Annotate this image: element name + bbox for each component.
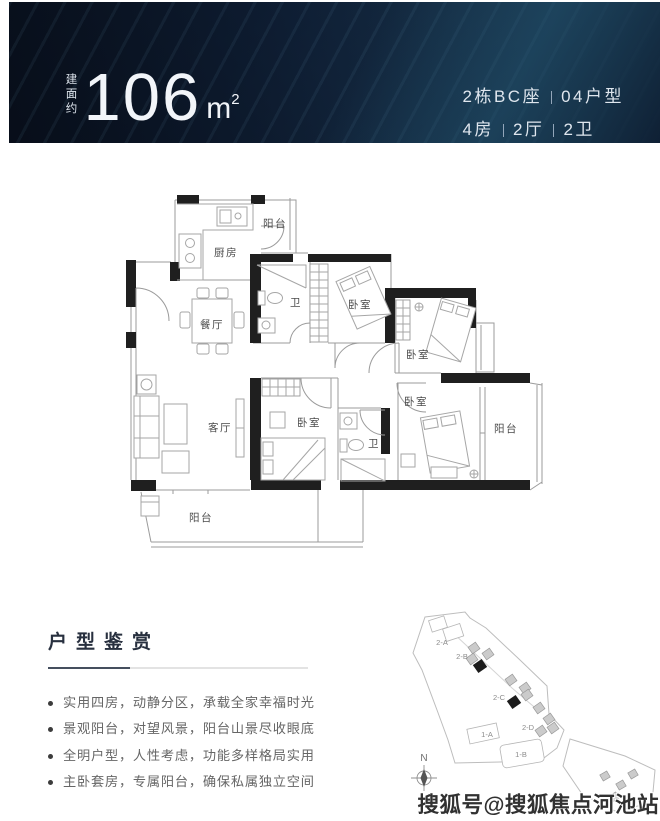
block-label: 2-A [436,638,448,647]
bedroom-top-door [335,343,360,368]
room-label-balcony-top: 阳台 [263,217,287,230]
rooms-label: 4房 [463,120,494,139]
area-unit-m: m [206,92,231,125]
features-title: 户型鉴赏 [48,627,378,654]
water-heater [141,496,159,516]
room-label-bath2: 卫 [368,438,380,450]
toilet-2 [340,439,347,452]
area-unit-sup: 2 [231,91,239,108]
nightstand [401,454,415,467]
toilet-1 [258,291,265,305]
watermark: 搜狐号@搜狐焦点河池站 [418,788,659,819]
feature-item: 全明户型，人性考虑，功能多样格局实用 [48,743,378,769]
block-label: 2-B [456,652,468,661]
room-label-dining: 餐厅 [200,318,224,331]
feature-item: 景观阳台，对望风景，阳台山景尽收眼底 [48,716,378,742]
room-label-bedroom-top: 卧室 [348,298,372,311]
divider [553,124,554,137]
bed-top [336,267,391,330]
floor-plan: 厨房 阳台 卫 餐厅 卧室 卧室 卧室 阳台 卧室 卫 客厅 阳台 [113,190,553,570]
bench [431,467,457,478]
area-unit: m2 [206,92,239,126]
bedroom-mid-door [301,378,331,408]
block-label: 1-B [515,750,527,759]
shower-1 [257,265,306,288]
shower-2 [341,459,385,481]
feature-list: 实用四房，动静分区，承载全家幸福时光 景观阳台，对望风景，阳台山景尽收眼底 全明… [48,690,378,795]
block-label: 2-C [493,693,506,702]
room-label-living: 客厅 [208,421,232,434]
bullet-dot-icon [48,780,53,785]
bed-master [420,411,469,473]
coffee-table [164,404,187,444]
desk [270,412,285,428]
basin-1 [258,318,275,333]
unit-type-label: 04户型 [561,87,624,106]
banner: 建面约 106 m2 2栋BC座04户型 4房2厅2卫 [9,2,660,143]
basin-2 [340,413,357,429]
room-labels: 厨房 阳台 卫 餐厅 卧室 卧室 卧室 阳台 卧室 卫 客厅 阳台 [189,217,518,524]
floorplan-flyer-page: 建面约 106 m2 2栋BC座04户型 4房2厅2卫 [0,0,660,821]
divider [551,91,552,104]
feature-item: 实用四房，动静分区，承载全家幸福时光 [48,690,378,716]
bed-right [426,298,476,362]
halls-label: 2厅 [513,120,544,139]
spec-line: 4房2厅2卫 [463,115,625,140]
feature-item: 主卧套房，专属阳台，确保私属独立空间 [48,769,378,795]
building-label: 2栋BC座 [463,87,543,106]
compass-n-label: N [420,753,427,764]
room-label-bedroom-master: 卧室 [404,395,428,408]
unit-line: 2栋BC座04户型 [463,82,625,107]
room-label-balcony-bottom: 阳台 [189,511,213,524]
room-label-balcony-right: 阳台 [494,422,518,435]
room-label-bath1: 卫 [290,297,302,309]
unit-info: 2栋BC座04户型 4房2厅2卫 [463,82,625,140]
bullet-dot-icon [48,754,53,759]
room-label-bedroom-mid: 卧室 [297,416,321,429]
baths-label: 2卫 [563,120,594,139]
room-label-kitchen: 厨房 [214,246,238,259]
bath1-door [290,323,310,343]
speaker [137,375,156,394]
block-label: 2-D [522,723,535,732]
features-section: 户型鉴赏 实用四房，动静分区，承载全家幸福时光 景观阳台，对望风景，阳台山景尽收… [48,627,378,795]
title-underline [48,667,308,669]
bullet-dot-icon [48,701,53,706]
entry-door [136,288,169,321]
divider [503,124,504,137]
area-prefix-label: 建面约 [64,73,76,126]
bullet-dot-icon [48,727,53,732]
compass-icon: N [411,753,437,791]
room-label-bedroom-right: 卧室 [406,348,430,361]
sofa [134,396,159,458]
ottoman [162,451,189,473]
area-block: 建面约 106 m2 [64,70,240,126]
block-label: 1-A [481,730,493,739]
site-plan: 2-A 2-B 2-C 2-D 1-A 1-B N [400,598,660,816]
area-value: 106 [84,70,202,126]
